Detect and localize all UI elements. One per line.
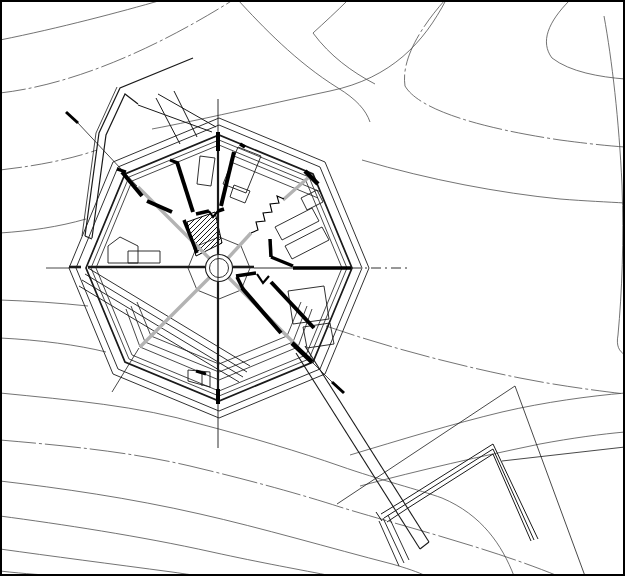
site-plan-svg: [0, 0, 625, 576]
center-core: [206, 255, 233, 282]
site-plan-drawing: [0, 0, 625, 576]
